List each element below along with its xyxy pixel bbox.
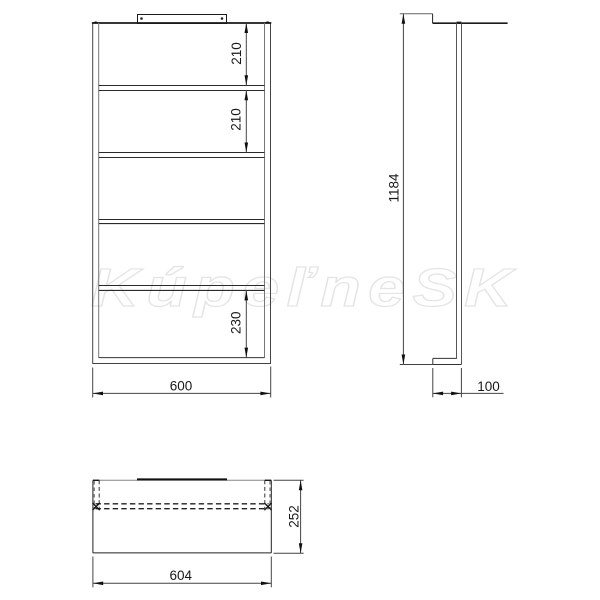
svg-text:600: 600	[170, 379, 193, 394]
svg-text:230: 230	[228, 311, 243, 334]
svg-text:KúpeľneSK: KúpeľneSK	[91, 257, 519, 318]
svg-text:210: 210	[229, 42, 244, 65]
svg-text:252: 252	[286, 505, 301, 528]
svg-text:604: 604	[170, 568, 193, 583]
svg-text:100: 100	[477, 379, 500, 394]
svg-text:1184: 1184	[386, 173, 401, 203]
svg-text:210: 210	[229, 108, 244, 131]
